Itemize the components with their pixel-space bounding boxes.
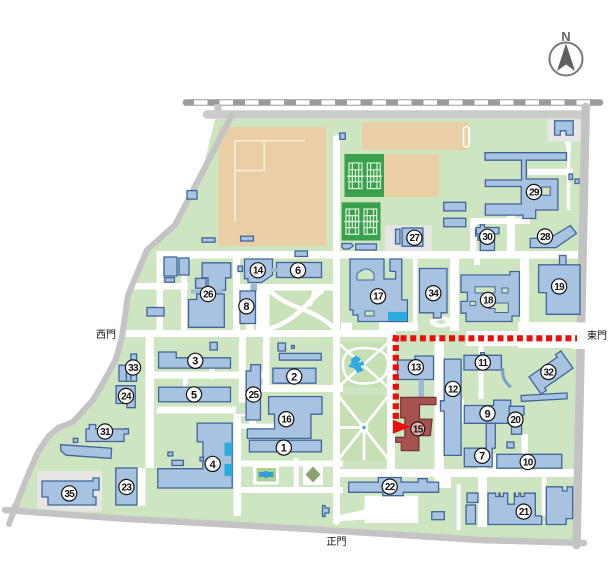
- svg-text:10: 10: [523, 457, 534, 468]
- svg-text:正門: 正門: [327, 536, 347, 548]
- svg-text:12: 12: [448, 384, 459, 395]
- svg-text:西門: 西門: [96, 329, 116, 341]
- svg-text:33: 33: [128, 363, 139, 374]
- svg-text:23: 23: [122, 482, 133, 493]
- svg-text:11: 11: [478, 358, 488, 369]
- svg-text:17: 17: [373, 292, 384, 303]
- svg-text:1: 1: [281, 443, 287, 455]
- svg-text:32: 32: [544, 367, 555, 378]
- svg-text:25: 25: [249, 390, 260, 401]
- svg-text:14: 14: [253, 266, 264, 277]
- svg-text:4: 4: [210, 459, 217, 471]
- svg-text:29: 29: [529, 187, 540, 198]
- svg-text:16: 16: [281, 415, 292, 426]
- svg-text:30: 30: [482, 232, 493, 243]
- svg-text:20: 20: [511, 415, 522, 426]
- svg-text:7: 7: [479, 451, 485, 463]
- svg-text:24: 24: [121, 391, 132, 402]
- svg-text:31: 31: [100, 427, 111, 438]
- svg-text:5: 5: [191, 389, 197, 401]
- svg-text:26: 26: [203, 289, 214, 300]
- svg-text:19: 19: [554, 282, 565, 293]
- svg-text:3: 3: [192, 356, 198, 368]
- svg-text:18: 18: [483, 295, 494, 306]
- svg-text:2: 2: [291, 371, 297, 383]
- svg-text:28: 28: [540, 232, 551, 243]
- svg-text:21: 21: [519, 507, 530, 518]
- svg-text:6: 6: [295, 265, 301, 277]
- svg-text:35: 35: [64, 489, 75, 500]
- svg-text:東門: 東門: [587, 329, 607, 342]
- svg-text:22: 22: [385, 482, 396, 493]
- svg-text:34: 34: [428, 289, 439, 300]
- svg-text:15: 15: [413, 424, 424, 435]
- svg-text:8: 8: [243, 301, 249, 313]
- svg-text:9: 9: [484, 408, 490, 420]
- svg-text:13: 13: [411, 363, 422, 374]
- svg-text:27: 27: [410, 233, 421, 244]
